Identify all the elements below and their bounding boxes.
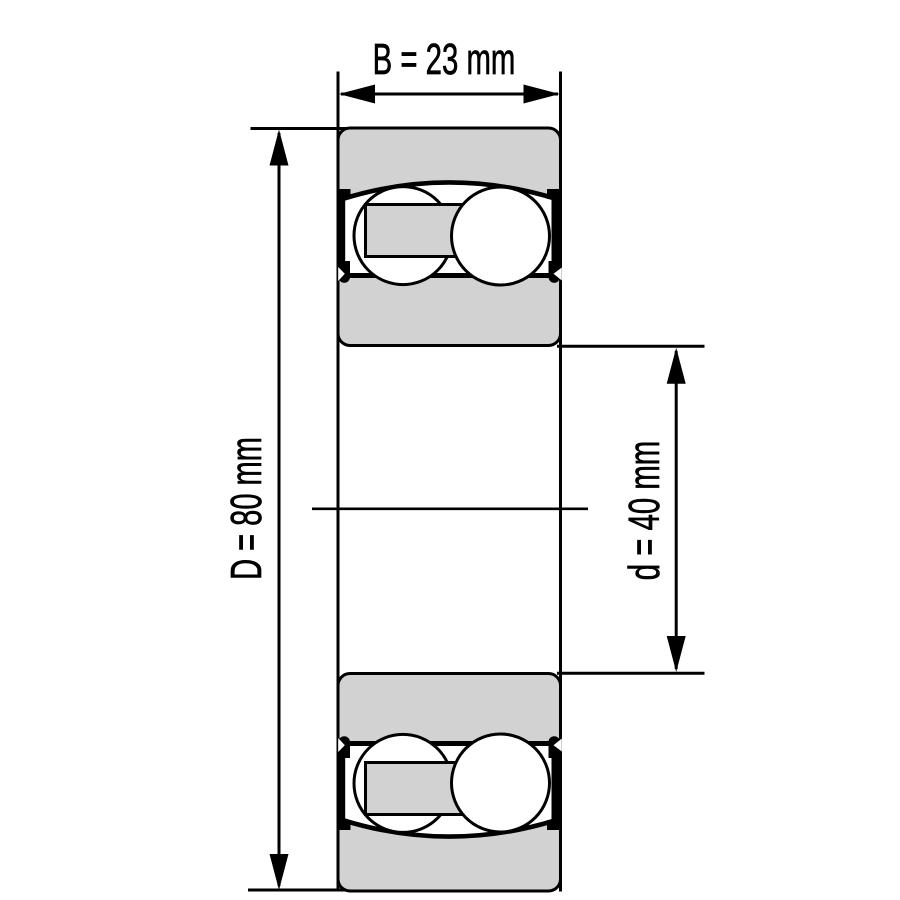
svg-text:d = 40 mm: d = 40 mm bbox=[619, 441, 668, 581]
svg-text:D = 80 mm: D = 80 mm bbox=[222, 437, 270, 580]
svg-text:B = 23 mm: B = 23 mm bbox=[373, 34, 516, 83]
